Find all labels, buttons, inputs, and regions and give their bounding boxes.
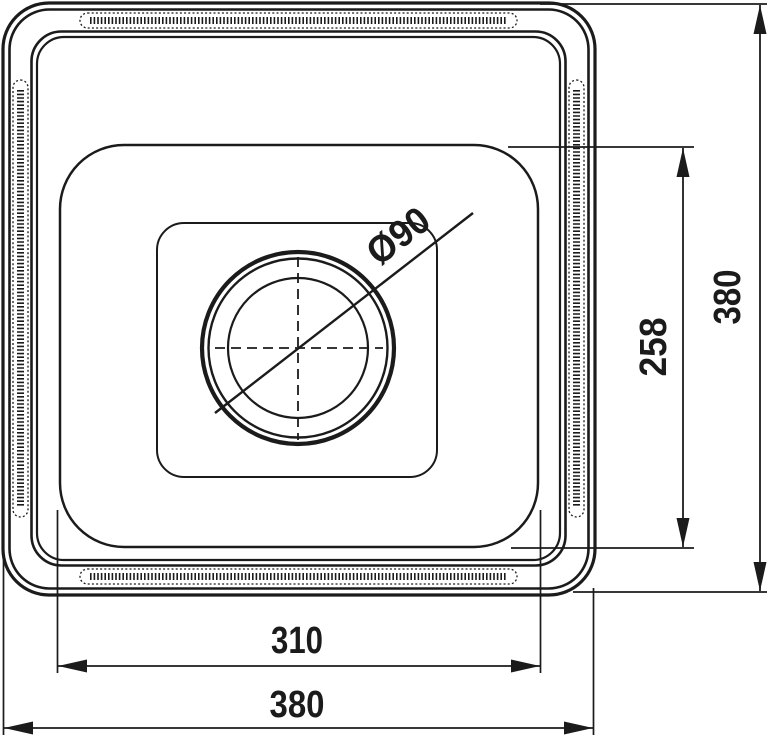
bowl-depth-label: 258 xyxy=(633,318,675,377)
sink-technical-drawing: Ø90 310 380 258 380 xyxy=(0,0,768,737)
arrowhead-right xyxy=(511,660,540,673)
dimension-bowl-width: 310 xyxy=(58,510,541,673)
bowl-width-label: 310 xyxy=(271,620,323,662)
arrowhead-right xyxy=(564,722,593,735)
arrowhead-top xyxy=(677,148,690,177)
dimension-overall-height: 380 xyxy=(540,4,767,592)
sink-outer-edge-second xyxy=(10,10,589,589)
arrowhead-bottom xyxy=(677,518,690,547)
overall-height-label: 380 xyxy=(707,270,749,325)
arrowhead-bottom xyxy=(754,562,767,591)
arrowhead-left xyxy=(4,722,33,735)
overall-width-label: 380 xyxy=(270,684,325,726)
arrowhead-left xyxy=(58,660,87,673)
bowl-edge xyxy=(60,145,538,547)
dimension-bowl-depth: 258 xyxy=(508,147,694,548)
drain-diameter-label: Ø90 xyxy=(359,199,439,274)
arrowhead-top xyxy=(754,5,767,34)
drain-diameter-leader-line xyxy=(215,213,473,413)
sink-outer-edge xyxy=(3,3,595,595)
